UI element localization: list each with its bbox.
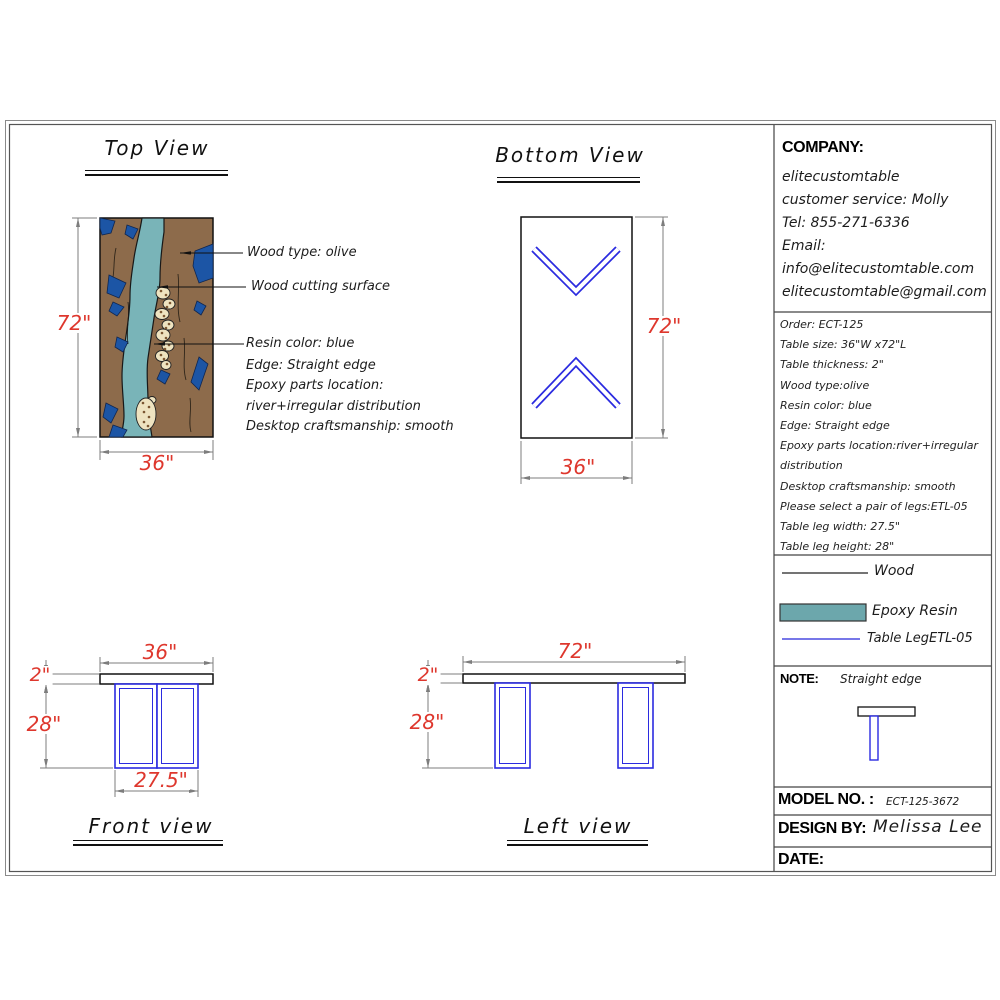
- legend-resin-label: Epoxy Resin: [872, 603, 958, 619]
- company-lines: elitecustomtable customer service: Molly…: [782, 166, 987, 304]
- bottom-view-title: Bottom View: [495, 143, 645, 167]
- model-no-value: ECT-125-3672: [886, 796, 959, 808]
- order-lines: Order: ECT-125 Table size: 36"W x72"L Ta…: [780, 315, 978, 557]
- front-thickness-dim: 2": [28, 666, 53, 685]
- order-line: Table leg height: 28": [780, 537, 978, 557]
- model-no-label: MODEL NO. :: [778, 791, 874, 809]
- bottom-width-dim: 36": [559, 457, 598, 477]
- spec-line: river+irregular distribution: [246, 397, 454, 417]
- front-view-underline: [73, 840, 223, 846]
- top-width-dim: 36": [138, 453, 177, 473]
- company-line: Email:: [782, 235, 987, 258]
- legend-wood-label: Wood: [874, 563, 914, 579]
- front-view-title: Front view: [89, 814, 214, 838]
- top-view-drawing: [100, 218, 213, 437]
- spec-line: Desktop craftsmanship: smooth: [246, 417, 454, 437]
- spec-lines: Edge: Straight edge Epoxy parts location…: [246, 356, 454, 437]
- bottom-view-underline: [497, 177, 640, 183]
- legend-symbols: [780, 573, 868, 639]
- spec-line: Edge: Straight edge: [246, 356, 454, 376]
- note-diagram: [858, 707, 915, 760]
- company-line: Tel: 855-271-6336: [782, 212, 987, 235]
- top-height-dim: 72": [55, 313, 94, 333]
- front-leg-height-dim: 28": [25, 714, 64, 734]
- left-view-underline: [507, 840, 648, 846]
- order-line: Table thickness: 2": [780, 355, 978, 375]
- order-line: Order: ECT-125: [780, 315, 978, 335]
- tabletop-bar: [100, 674, 213, 684]
- order-line: Epoxy parts location:river+irregular: [780, 436, 978, 456]
- bottom-height-dim: 72": [645, 316, 684, 336]
- company-line: customer service: Molly: [782, 189, 987, 212]
- front-leg-width-dim: 27.5": [132, 770, 190, 790]
- company-label: COMPANY:: [782, 139, 864, 157]
- drawing-sheet: Top View Bottom View Front view Left vie…: [0, 0, 1000, 1000]
- note-value: Straight edge: [840, 672, 922, 686]
- order-line: Wood type:olive: [780, 376, 978, 396]
- bottom-view-drawing: [521, 217, 668, 484]
- leader-label-wood-type: Wood type: olive: [247, 245, 357, 260]
- date-label: DATE:: [778, 851, 824, 869]
- left-view-title: Left view: [524, 814, 633, 838]
- left-leg-height-dim: 28": [408, 712, 447, 732]
- front-width-dim: 36": [141, 642, 180, 662]
- order-line: Resin color: blue: [780, 396, 978, 416]
- company-line: info@elitecustomtable.com: [782, 258, 987, 281]
- order-line: Desktop craftsmanship: smooth: [780, 477, 978, 497]
- top-view-title: Top View: [105, 136, 210, 160]
- epoxy-resin-swatch: [780, 604, 866, 621]
- order-line: Table size: 36"W x72"L: [780, 335, 978, 355]
- design-by-label: DESIGN BY:: [778, 820, 866, 838]
- order-line: Please select a pair of legs:ETL-05: [780, 497, 978, 517]
- tabletop-bar: [463, 674, 685, 683]
- leader-label-resin-color: Resin color: blue: [246, 336, 354, 351]
- order-line: Edge: Straight edge: [780, 416, 978, 436]
- leg-frames: [495, 683, 653, 768]
- left-thickness-dim: 2": [416, 666, 441, 685]
- company-line: elitecustomtable: [782, 166, 987, 189]
- left-length-dim: 72": [556, 641, 595, 661]
- design-by-value: Melissa Lee: [873, 817, 983, 837]
- leg-frames: [115, 684, 198, 768]
- spec-line: Epoxy parts location:: [246, 376, 454, 396]
- company-line: elitecustomtable@gmail.com: [782, 281, 987, 304]
- leader-label-cutting-surface: Wood cutting surface: [251, 279, 390, 294]
- note-label: NOTE:: [780, 671, 818, 686]
- order-line: Table leg width: 27.5": [780, 517, 978, 537]
- legend-leg-label: Table LegETL-05: [867, 631, 973, 646]
- top-view-underline: [85, 170, 228, 176]
- order-line: distribution: [780, 456, 978, 476]
- left-view-drawing: [420, 656, 685, 768]
